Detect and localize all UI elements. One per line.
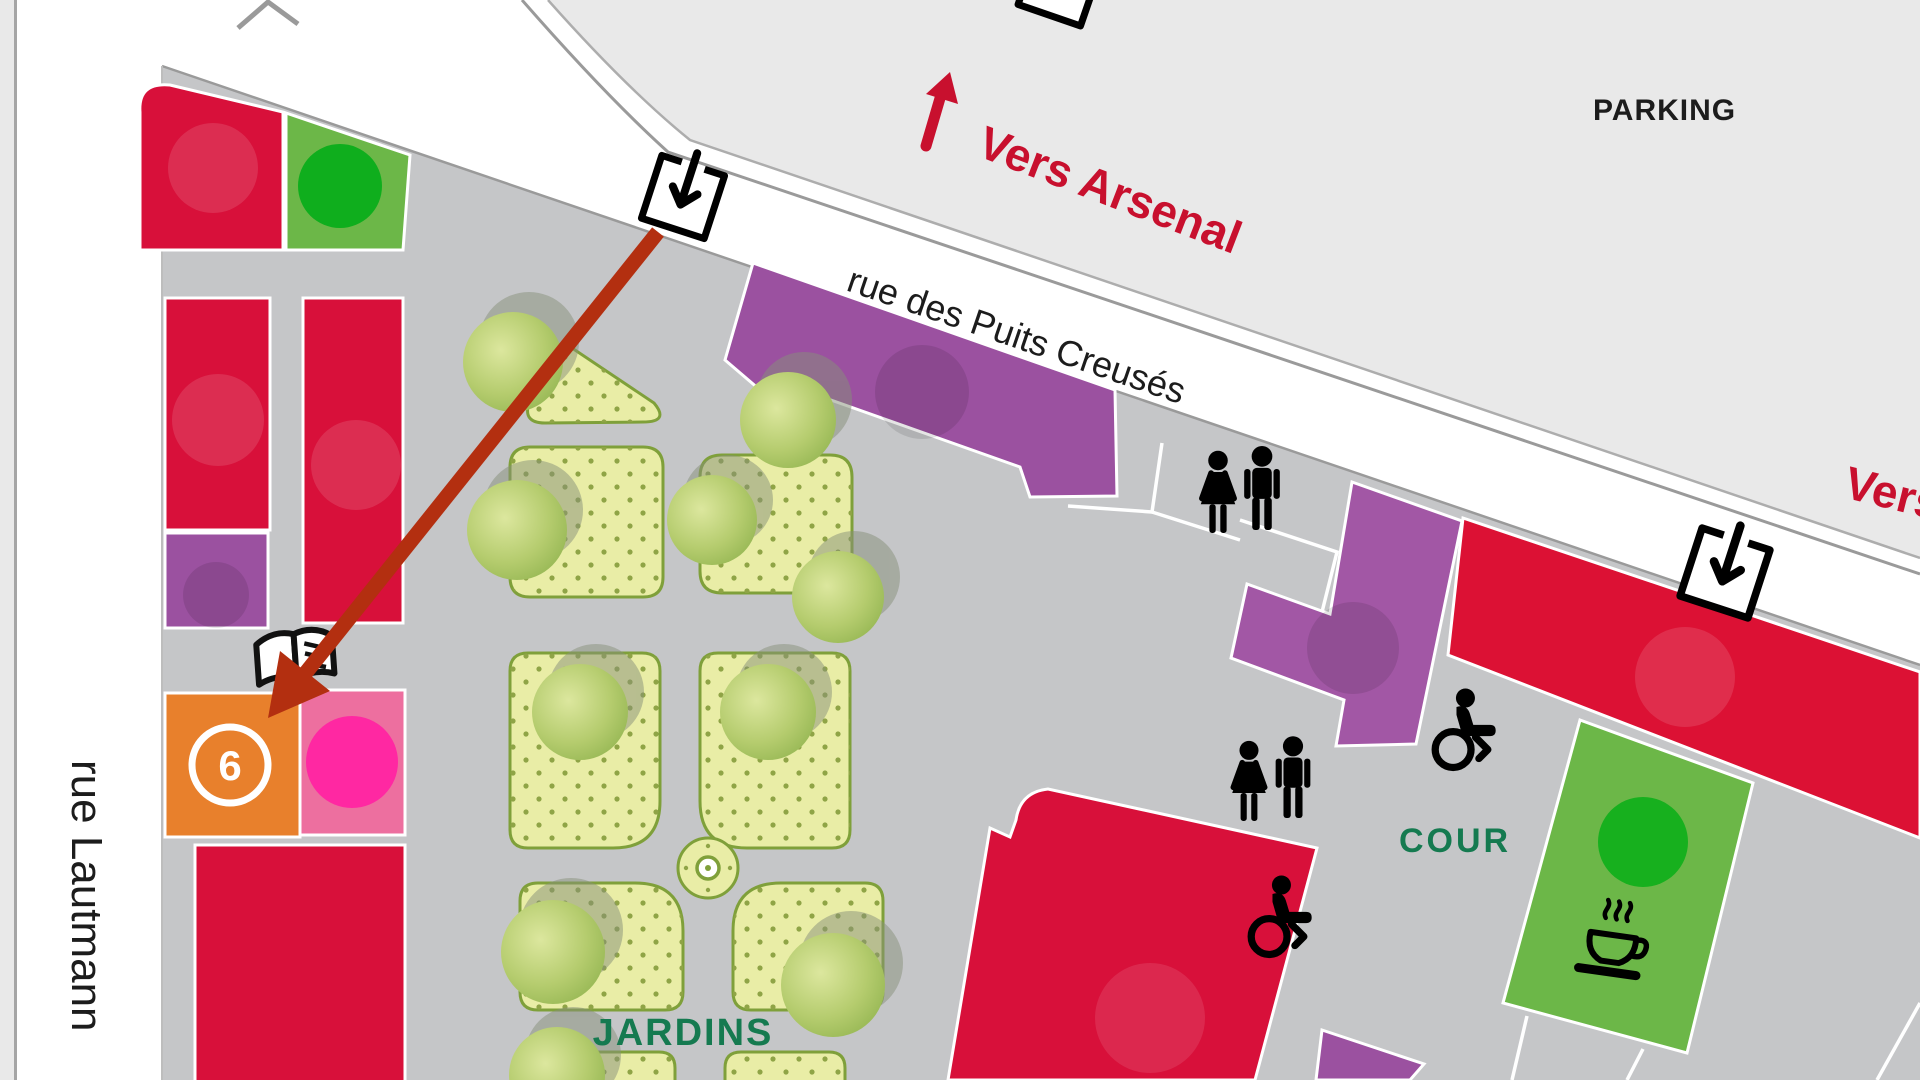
tree <box>667 475 757 565</box>
venue6-number: 6 <box>218 742 241 789</box>
left-margin-line <box>14 0 18 1080</box>
street-lautmann-label: rue Lautmann <box>62 760 111 1032</box>
parking-label: PARKING <box>1593 94 1736 127</box>
tree <box>720 664 816 760</box>
tree <box>501 900 605 1004</box>
cour-label: COUR <box>1399 822 1511 860</box>
building-red-4 <box>195 845 405 1080</box>
fountain <box>678 838 738 898</box>
tree <box>532 664 628 760</box>
tree <box>792 551 884 643</box>
site-map: PARKING Vers Arsenal Vers rue des Puits … <box>0 0 1920 1080</box>
tree <box>467 480 567 580</box>
jardins-label: JARDINS <box>593 1012 774 1054</box>
tree <box>781 933 885 1037</box>
map-canvas: PARKING Vers Arsenal Vers rue des Puits … <box>0 0 1920 1080</box>
building-green-cafe-circle <box>1598 797 1688 887</box>
tree <box>740 372 836 468</box>
building-pink-circle <box>306 716 398 808</box>
building-green-1-circle <box>298 144 382 228</box>
left-margin <box>0 0 14 1080</box>
